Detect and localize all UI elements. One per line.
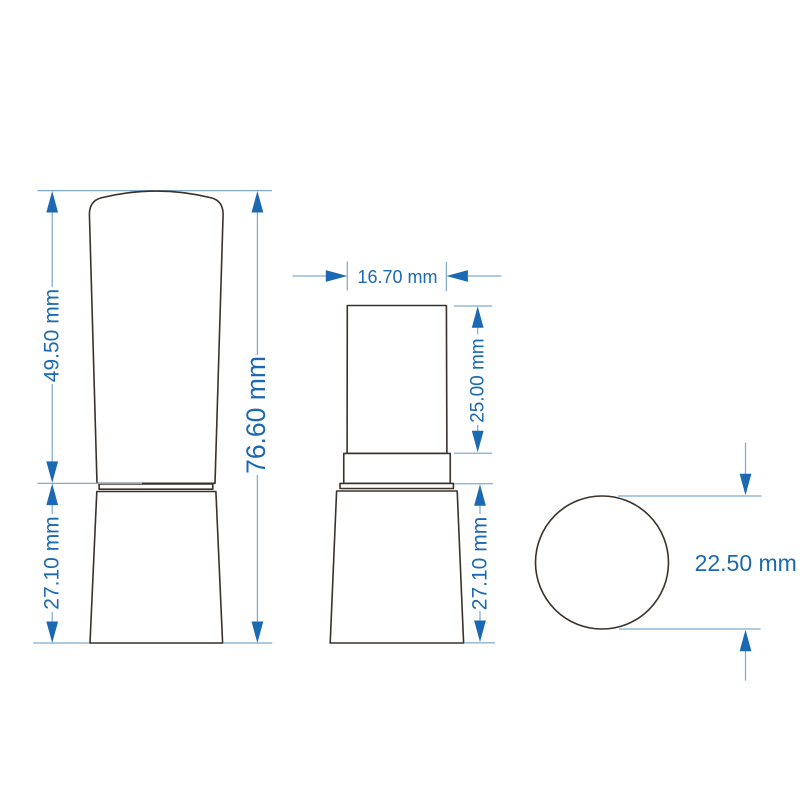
svg-text:27.10 mm: 27.10 mm: [40, 516, 63, 609]
svg-text:25.00 mm: 25.00 mm: [467, 338, 488, 422]
svg-text:27.10 mm: 27.10 mm: [469, 517, 492, 610]
svg-text:76.60 mm: 76.60 mm: [241, 356, 271, 474]
svg-text:22.50 mm: 22.50 mm: [695, 550, 797, 576]
svg-text:16.70 mm: 16.70 mm: [357, 267, 437, 287]
svg-text:49.50 mm: 49.50 mm: [40, 289, 63, 382]
